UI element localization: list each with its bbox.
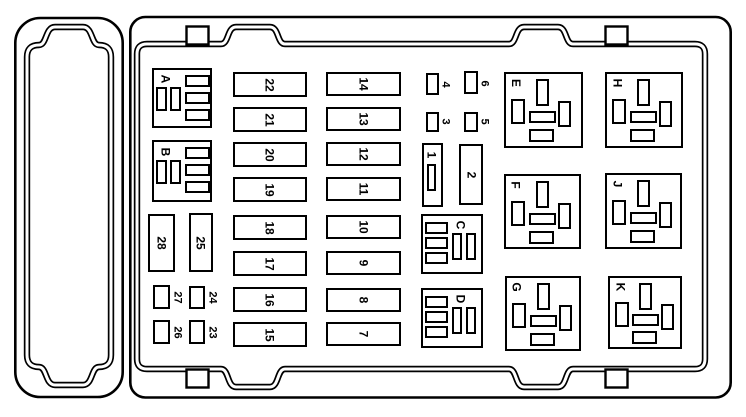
terminal-slot bbox=[185, 75, 210, 87]
connector-block-b: B bbox=[152, 140, 212, 202]
block-d-label: D bbox=[452, 292, 468, 305]
terminal-slot bbox=[425, 252, 448, 264]
connector-block-a: A bbox=[152, 68, 212, 128]
terminal-slot bbox=[530, 315, 557, 327]
relay-g-label: G bbox=[509, 279, 525, 295]
fuse-2: 2 bbox=[459, 144, 483, 205]
terminal-slot bbox=[185, 181, 210, 193]
terminal-slot bbox=[511, 201, 525, 226]
fuse-13: 13 bbox=[326, 107, 401, 131]
terminal-slot bbox=[452, 233, 462, 260]
terminal-slot bbox=[536, 79, 549, 106]
fuse-25: 25 bbox=[189, 213, 213, 272]
relay-h: H bbox=[605, 72, 683, 148]
terminal-slot bbox=[425, 296, 448, 308]
block-a-label: A bbox=[159, 71, 172, 86]
fuse-23 bbox=[189, 320, 205, 344]
relay-g: G bbox=[505, 276, 581, 351]
terminal-slot bbox=[185, 109, 210, 121]
terminal-slot bbox=[661, 304, 674, 330]
fuse-17: 17 bbox=[233, 251, 307, 276]
fuse-20: 20 bbox=[233, 142, 307, 167]
relay-e-label: E bbox=[508, 75, 524, 91]
fuse-15: 15 bbox=[233, 322, 307, 347]
terminal-slot bbox=[530, 333, 555, 346]
block-b-label: B bbox=[159, 144, 172, 159]
cover-inner-outline bbox=[27, 27, 111, 385]
terminal-slot bbox=[466, 307, 476, 334]
fuse-box-diagram: A B 22 21 20 19 18 17 16 15 14 13 12 11 … bbox=[0, 0, 746, 417]
relay-h-label: H bbox=[609, 75, 625, 91]
fuse-27 bbox=[153, 285, 170, 309]
terminal-slot bbox=[659, 101, 672, 127]
fuse-23-label: 23 bbox=[204, 322, 220, 342]
terminal-slot bbox=[425, 311, 448, 323]
terminal-slot bbox=[185, 92, 210, 104]
fuse-24 bbox=[189, 286, 205, 309]
fuse-1: 1 bbox=[422, 143, 443, 207]
terminal-slot bbox=[612, 200, 626, 225]
fuse-5-label: 5 bbox=[477, 113, 492, 130]
terminal-slot bbox=[630, 129, 655, 142]
terminal-slot bbox=[170, 87, 181, 111]
fuse-19: 19 bbox=[233, 177, 307, 202]
terminal-slot bbox=[558, 101, 571, 127]
terminal-slot bbox=[639, 283, 652, 310]
terminal-slot bbox=[558, 203, 571, 229]
relay-j-label: J bbox=[609, 176, 625, 192]
relay-j: J bbox=[605, 173, 682, 249]
terminal-slot bbox=[425, 237, 448, 249]
cover-outer-outline bbox=[15, 18, 122, 397]
fuse-27-label: 27 bbox=[169, 287, 185, 307]
terminal-slot bbox=[185, 164, 210, 176]
mount-tab-bottom-left bbox=[187, 370, 209, 388]
fuse-6 bbox=[464, 71, 478, 94]
terminal-slot bbox=[425, 326, 448, 338]
fuse-5 bbox=[464, 112, 478, 132]
terminal-slot bbox=[537, 283, 550, 310]
fuse-11: 11 bbox=[326, 177, 401, 201]
terminal-slot bbox=[185, 147, 210, 159]
fuse-28: 28 bbox=[148, 214, 175, 272]
terminal-slot bbox=[156, 87, 167, 111]
terminal-slot bbox=[427, 164, 436, 191]
terminal-slot bbox=[559, 305, 572, 331]
terminal-slot bbox=[529, 129, 554, 142]
fuse-4-label: 4 bbox=[438, 76, 453, 93]
fuse-1-label: 1 bbox=[424, 147, 439, 162]
fuse-7: 7 bbox=[326, 322, 401, 346]
fuse-21: 21 bbox=[233, 107, 307, 132]
fuse-14: 14 bbox=[326, 72, 401, 96]
relay-k: K bbox=[608, 276, 682, 349]
terminal-slot bbox=[511, 99, 525, 124]
terminal-slot bbox=[536, 181, 549, 208]
terminal-slot bbox=[632, 314, 659, 326]
block-c-label: C bbox=[452, 218, 468, 231]
terminal-slot bbox=[630, 212, 657, 224]
fuse-24-label: 24 bbox=[204, 287, 220, 307]
cover-inner-outline-gap bbox=[27, 27, 111, 385]
terminal-slot bbox=[529, 111, 556, 123]
terminal-slot bbox=[630, 111, 657, 123]
fuse-18: 18 bbox=[233, 215, 307, 240]
terminal-slot bbox=[529, 213, 556, 225]
terminal-slot bbox=[659, 202, 672, 228]
connector-block-c: C bbox=[421, 214, 483, 274]
fuse-3-label: 3 bbox=[438, 113, 453, 130]
fuse-12: 12 bbox=[326, 142, 401, 166]
terminal-slot bbox=[425, 222, 448, 234]
relay-f: F bbox=[504, 174, 581, 249]
terminal-slot bbox=[170, 160, 181, 184]
fuse-16: 16 bbox=[233, 287, 307, 312]
terminal-slot bbox=[632, 331, 657, 344]
mount-tab-bottom-right bbox=[606, 370, 628, 388]
terminal-slot bbox=[452, 307, 462, 334]
relay-k-label: K bbox=[612, 279, 628, 295]
terminal-slot bbox=[512, 303, 526, 328]
terminal-slot bbox=[637, 180, 650, 207]
fuse-9: 9 bbox=[326, 251, 401, 275]
fuse-22: 22 bbox=[233, 72, 307, 97]
terminal-slot bbox=[612, 99, 626, 124]
fuse-26-label: 26 bbox=[169, 322, 185, 342]
mount-tab-top-right bbox=[606, 27, 628, 45]
terminal-slot bbox=[637, 79, 650, 106]
relay-e: E bbox=[504, 72, 583, 148]
connector-block-d: D bbox=[421, 288, 483, 348]
fuse-26 bbox=[153, 320, 170, 344]
terminal-slot bbox=[529, 231, 554, 244]
terminal-slot bbox=[466, 233, 476, 260]
fuse-8: 8 bbox=[326, 288, 401, 312]
relay-f-label: F bbox=[508, 177, 524, 193]
fuse-6-label: 6 bbox=[477, 75, 492, 92]
terminal-slot bbox=[630, 230, 655, 243]
terminal-slot bbox=[615, 302, 629, 327]
terminal-slot bbox=[156, 160, 167, 184]
mount-tab-top-left bbox=[187, 27, 209, 45]
fuse-10: 10 bbox=[326, 215, 401, 239]
